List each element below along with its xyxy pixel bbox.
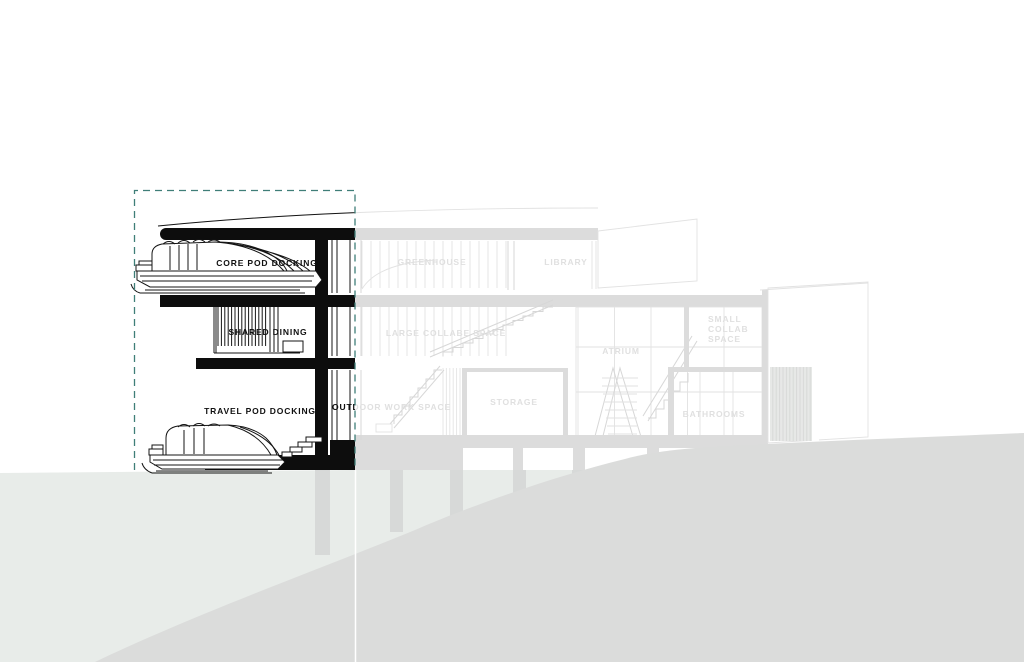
label-shared-dining: SHARED DINING [228,327,307,337]
label-travel-pod-docking: TRAVEL POD DOCKING [204,406,316,416]
label-library: LIBRARY [544,257,587,267]
label-small-collab-3: SPACE [708,334,741,344]
label-large-collab-space: LARGE COLLABE SPACE [386,328,506,338]
label-storage: STORAGE [490,397,538,407]
section-drawing: GREENHOUSE LIBRARY LARGE COLLABE SPACE A… [0,0,1024,662]
label-atrium: ATRIUM [602,346,640,356]
label-greenhouse: GREENHOUSE [398,257,467,267]
section-diagram-canvas: GREENHOUSE LIBRARY LARGE COLLABE SPACE A… [0,0,1024,662]
label-core-pod-docking: CORE POD DOCKING [216,258,317,268]
label-bathrooms: BATHROOMS [683,409,746,419]
label-small-collab-1: SMALL [708,314,742,324]
label-small-collab-2: COLLAB [708,324,749,334]
